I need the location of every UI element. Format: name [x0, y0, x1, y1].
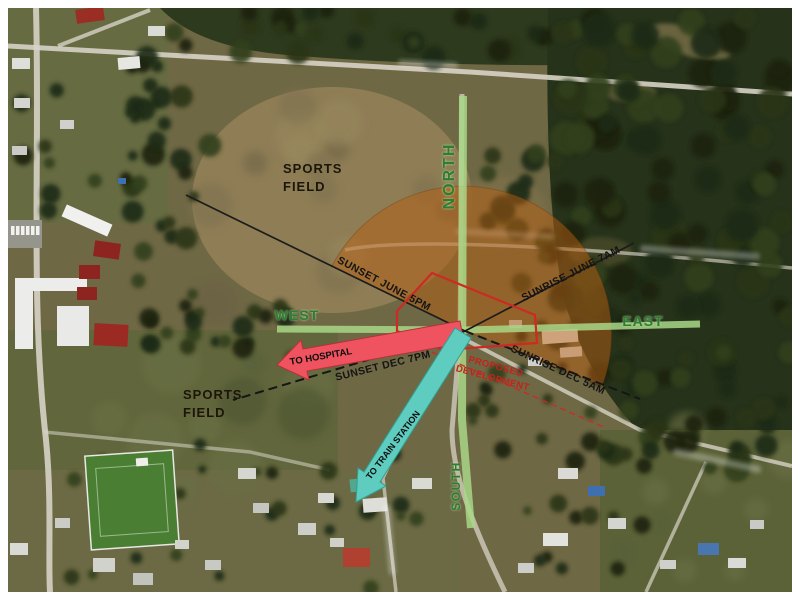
analysis-overlay — [8, 8, 792, 592]
aerial-photo — [8, 8, 792, 592]
site-analysis-map: SPORTS FIELD SPORTS FIELD NORTH SOUTH WE… — [0, 0, 800, 600]
